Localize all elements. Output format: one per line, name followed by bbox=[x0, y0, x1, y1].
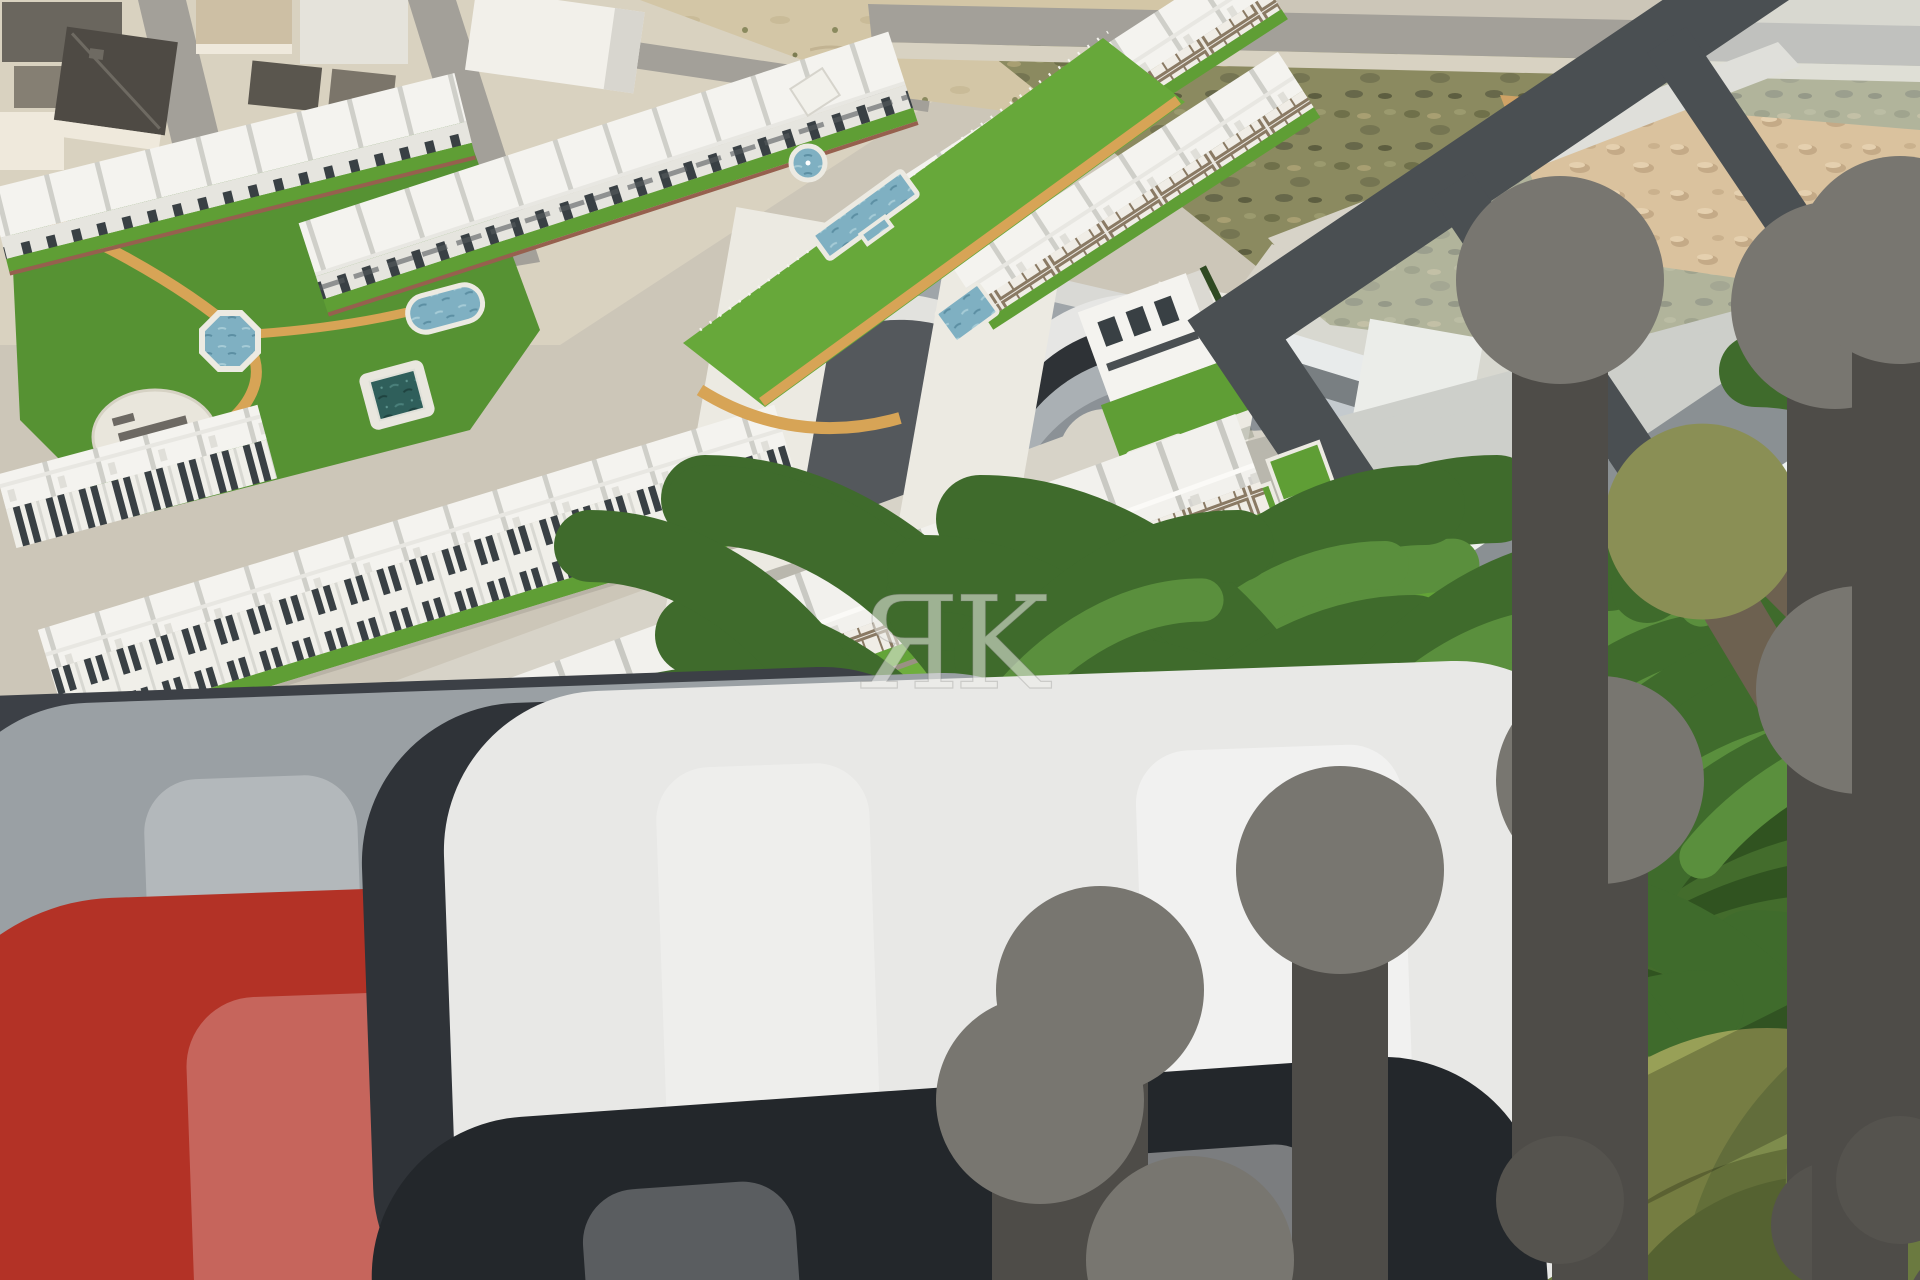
town-building bbox=[300, 0, 408, 64]
octagonal-fountain-pool bbox=[202, 313, 258, 369]
town-roof bbox=[248, 60, 322, 111]
aerial-render: ЯK bbox=[0, 0, 1920, 1280]
watermark: ЯK bbox=[857, 570, 1052, 719]
town-villa bbox=[52, 27, 178, 152]
town-house bbox=[0, 112, 64, 170]
screenshot-stage: ЯK bbox=[0, 0, 1920, 1280]
fountain-jet bbox=[806, 161, 811, 166]
town-facade bbox=[196, 44, 292, 54]
town-roof bbox=[196, 0, 292, 44]
